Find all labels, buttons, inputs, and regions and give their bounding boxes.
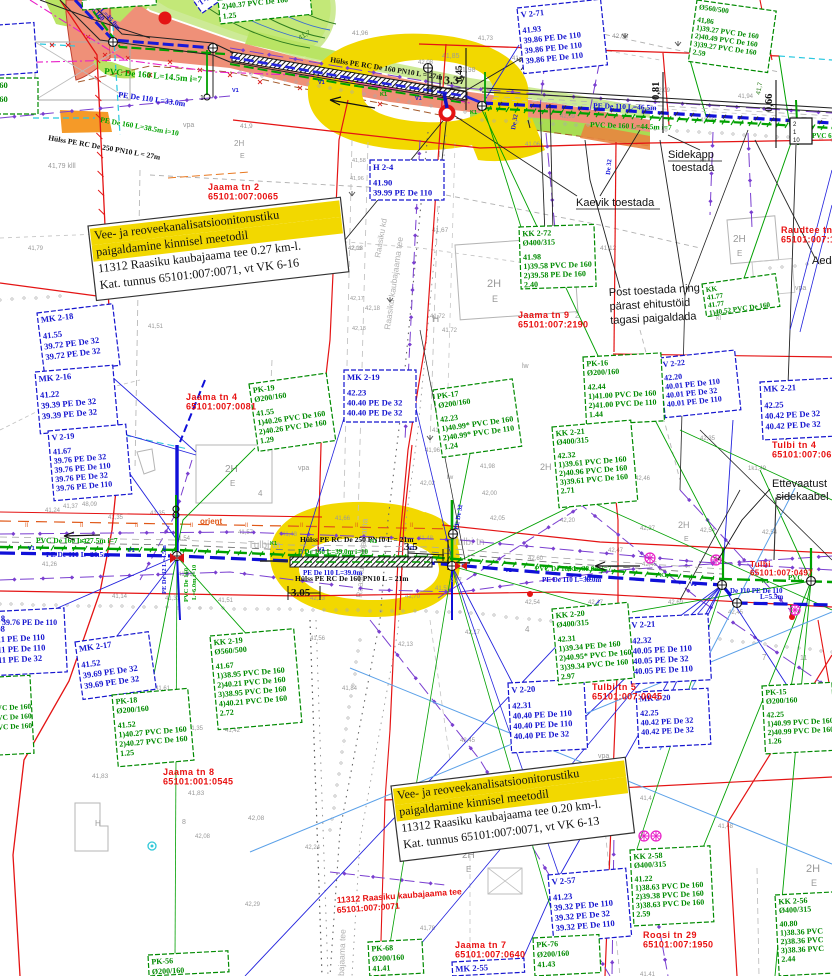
svg-text:PK-56: PK-56 [151,956,173,966]
svg-text:vpa: vpa [298,465,309,472]
svg-text:42,18: 42,18 [365,306,381,312]
svg-text:V1: V1 [690,582,697,588]
svg-text:42,23: 42,23 [310,596,326,602]
svg-text:42,08: 42,08 [248,815,265,822]
svg-text:1.24: 1.24 [443,441,458,452]
svg-text:E: E [684,536,689,543]
svg-text:42,00: 42,00 [482,491,498,497]
svg-text:41,9: 41,9 [240,123,253,130]
svg-text:Ø400/315: Ø400/315 [634,859,667,870]
svg-text:PVC De 160: PVC De 160 [183,568,190,602]
svg-text:E: E [811,878,817,888]
svg-text:2.97: 2.97 [561,671,576,681]
svg-text:Tulbi tn: Tulbi tn [452,537,484,548]
svg-text:E De 160 L=39.0m i=10: E De 160 L=39.0m i=10 [298,548,369,556]
svg-text:3.5: 3.5 [404,541,418,553]
svg-text:41,26: 41,26 [42,562,58,568]
svg-text:41.41: 41.41 [372,963,390,973]
svg-text:4: 4 [258,489,263,498]
svg-text:41,96: 41,96 [350,176,364,182]
svg-text:PE De 110 L=26.5m: PE De 110 L=26.5m [46,550,110,559]
svg-text:Sidekapp: Sidekapp [668,149,714,161]
svg-text:V 2-57: V 2-57 [551,875,576,887]
svg-text:65101:007:0497: 65101:007:0497 [750,569,813,578]
svg-text:42,17: 42,17 [350,296,364,302]
svg-text:K1: K1 [570,567,577,573]
svg-text:lw: lw [447,474,453,481]
svg-text:Il: Il [190,523,193,529]
svg-text:V1: V1 [28,546,35,552]
svg-text:42,54: 42,54 [525,600,541,606]
svg-text:Il: Il [355,523,358,529]
svg-text:65101:001:0545: 65101:001:0545 [163,777,233,787]
svg-text:42.32: 42.32 [632,635,652,646]
svg-text:1.29: 1.29 [259,435,274,446]
svg-text:41,96: 41,96 [352,30,369,37]
svg-text:Jaama tn 4: Jaama tn 4 [186,392,238,402]
svg-text:41,37: 41,37 [63,504,79,510]
svg-text:8: 8 [182,819,186,826]
svg-text:65101:007:0640: 65101:007:0640 [455,950,525,960]
svg-text:PK-68: PK-68 [371,943,393,953]
svg-text:Il: Il [80,523,83,529]
svg-text:2.59: 2.59 [636,909,650,919]
svg-text:2.71: 2.71 [560,485,575,495]
svg-text:42,13: 42,13 [398,642,414,648]
svg-text:39.76 PE De 110: 39.76 PE De 110 [2,618,57,627]
svg-text:41,35: 41,35 [108,515,124,521]
svg-text:41,48: 41,48 [718,824,734,830]
svg-text:2.59: 2.59 [692,47,706,58]
svg-text:H: H [95,819,101,828]
svg-text:Ettevaatust: Ettevaatust [772,478,827,490]
svg-text:Jaama tn 8: Jaama tn 8 [163,767,215,777]
svg-text:42,46: 42,46 [635,476,651,482]
svg-text:41,73: 41,73 [478,36,494,42]
svg-text:41,14: 41,14 [112,594,128,600]
svg-text:Il: Il [300,523,303,529]
svg-text:39.99 PE De 110: 39.99 PE De 110 [373,188,432,198]
svg-text:41,98: 41,98 [480,464,496,470]
svg-text:41,79: 41,79 [28,246,44,252]
svg-text:MK 2-21: MK 2-21 [763,382,796,394]
svg-text:42.25: 42.25 [764,399,784,410]
svg-text:42,24: 42,24 [305,845,321,851]
svg-text:41,83: 41,83 [92,773,109,780]
svg-text:48,09: 48,09 [82,502,98,508]
svg-text:0,81: 0,81 [651,82,662,100]
svg-text:PE De 32 L=4.5m: PE De 32 L=4.5m [161,545,168,594]
svg-text:PE De 110 L=38.0m: PE De 110 L=38.0m [542,576,601,584]
svg-text:H 2-4: H 2-4 [373,162,394,172]
svg-text:41,56: 41,56 [310,636,326,642]
svg-text:Ø200/160: Ø200/160 [587,367,620,378]
svg-text:42,17: 42,17 [465,630,481,636]
svg-text:2H: 2H [225,464,238,475]
svg-text:42,18: 42,18 [348,246,364,252]
svg-text:Raudtee tn: Raudtee tn [781,225,832,235]
svg-text:41,79 klll: 41,79 klll [48,163,76,170]
svg-text:42,18: 42,18 [352,326,366,332]
svg-text:41,48: 41,48 [282,532,298,538]
svg-text:42,09: 42,09 [560,114,576,120]
svg-text:160: 160 [0,94,8,104]
svg-text:V1: V1 [415,96,422,102]
svg-text:65101:007:0065: 65101:007:0065 [208,192,278,202]
svg-text:41,67: 41,67 [432,227,449,234]
svg-text:2.47: 2.47 [450,578,462,584]
svg-text:Ø200/160: Ø200/160 [152,966,185,976]
svg-text:Hülss PE RC De 160 PN10 L = 21: Hülss PE RC De 160 PN10 L = 21m [295,574,409,583]
svg-text:L=6.0m i=10: L=6.0m i=10 [191,565,198,600]
svg-text:Kaevik toestada: Kaevik toestada [576,197,655,209]
svg-text:0,66: 0,66 [764,94,775,112]
svg-text:V1: V1 [505,568,512,574]
svg-text:42,08: 42,08 [195,834,211,840]
svg-text:L=5.5m: L=5.5m [760,593,783,601]
svg-text:K1: K1 [380,92,387,98]
svg-text:De 32: De 32 [605,159,613,175]
svg-text:Jaama tn 2: Jaama tn 2 [208,182,260,192]
svg-text:V1: V1 [318,80,325,86]
svg-text:41,51: 41,51 [218,598,234,604]
svg-text:PVC 6: PVC 6 [812,132,832,140]
svg-text:41,72: 41,72 [430,314,446,320]
svg-text:Il: Il [410,523,413,529]
svg-text:40.40 PE De 32: 40.40 PE De 32 [347,408,402,418]
svg-text:42,37: 42,37 [640,526,656,532]
svg-text:4: 4 [525,625,530,634]
svg-text:41,72: 41,72 [442,328,458,334]
svg-text:42,35: 42,35 [700,436,716,442]
svg-text:42,45: 42,45 [460,738,476,744]
svg-text:40.40 PE De 32: 40.40 PE De 32 [347,398,402,408]
svg-text:bajaama tee: bajaama tee [336,929,348,976]
svg-text:41,58: 41,58 [352,158,366,164]
svg-text:2.72: 2.72 [219,708,234,718]
svg-text:Ø400/315: Ø400/315 [522,237,555,247]
svg-text:toestada: toestada [672,162,715,174]
svg-text:K1: K1 [470,110,477,116]
svg-text:Hülss PE RC De 250 PN10 L = 21: Hülss PE RC De 250 PN10 L = 21m [300,535,414,544]
svg-text:41.90: 41.90 [373,178,392,188]
svg-text:65101:007:0081: 65101:007:0081 [186,402,256,412]
svg-text:160: 160 [0,80,8,90]
svg-text:Roosi tn 29: Roosi tn 29 [643,930,697,940]
svg-text:Tulbi tn 5: Tulbi tn 5 [592,682,636,692]
svg-text:65101:007:060: 65101:007:060 [772,450,832,460]
svg-text:65101:007:0045: 65101:007:0045 [592,692,662,702]
svg-text:1.25: 1.25 [120,748,135,758]
svg-text:2H: 2H [487,278,501,290]
svg-text:V1: V1 [128,548,135,554]
svg-text:PVC De 160 L=27.5m i=7: PVC De 160 L=27.5m i=7 [36,536,118,545]
svg-text:41,96: 41,96 [425,448,441,454]
svg-text:Il: Il [245,523,248,529]
svg-text:42,29: 42,29 [245,902,261,908]
svg-text:41,41: 41,41 [640,972,656,976]
svg-text:Ø200/160: Ø200/160 [537,949,570,960]
svg-text:7: 7 [762,653,767,662]
svg-text:65101:007:1: 65101:007:1 [781,235,832,245]
svg-text:1.26: 1.26 [768,736,782,746]
svg-text:1.25: 1.25 [222,10,237,20]
svg-text:1: 1 [200,95,204,102]
svg-text:Ø400/315: Ø400/315 [779,904,812,915]
svg-text:Ø200/160: Ø200/160 [766,695,798,706]
svg-text:E: E [240,153,245,160]
svg-text:Aed: Aed [812,255,832,267]
svg-text:V 2-21: V 2-21 [631,619,655,630]
svg-text:41,94: 41,94 [738,94,754,100]
svg-text:E: E [737,249,742,258]
svg-text:3.37: 3.37 [444,73,465,87]
svg-text:10: 10 [793,138,800,144]
svg-text:65101:007:1950: 65101:007:1950 [643,940,713,950]
svg-text:K1: K1 [660,573,667,579]
svg-text:Jaama tn 7: Jaama tn 7 [455,940,507,950]
svg-text:vpa: vpa [183,122,194,129]
svg-text:lw: lw [522,363,530,370]
svg-text:MK 2-55: MK 2-55 [455,962,488,974]
svg-text:K1: K1 [80,539,87,545]
svg-text:41,4: 41,4 [640,796,652,802]
svg-text:V1: V1 [232,88,239,94]
svg-text:K1: K1 [370,539,377,545]
svg-text:2H: 2H [806,863,820,875]
svg-text:42.23: 42.23 [347,388,366,398]
svg-text:K1: K1 [270,541,277,547]
svg-text:K1: K1 [762,579,769,585]
svg-text:Ø200/160: Ø200/160 [372,953,405,964]
svg-text:42.25: 42.25 [640,708,659,718]
svg-text:V1: V1 [585,576,592,582]
svg-text:2H: 2H [540,462,552,472]
svg-text:41,83: 41,83 [188,790,205,797]
svg-text:E: E [492,294,498,304]
svg-text:42,47: 42,47 [608,548,624,554]
svg-text:41,57: 41,57 [238,530,254,536]
svg-text:2H: 2H [234,139,244,148]
svg-text:V 2-20: V 2-20 [511,684,535,695]
svg-text:1.44: 1.44 [589,410,603,420]
svg-text:41,84: 41,84 [342,686,358,692]
svg-text:Il: Il [135,523,138,529]
svg-text:41.43: 41.43 [537,959,555,969]
svg-text:41,51: 41,51 [148,324,164,330]
svg-text:sidekaabel: sidekaabel [776,491,829,503]
svg-text:Jaama tn 9: Jaama tn 9 [518,310,570,320]
svg-text:E: E [230,479,235,488]
svg-text:41,66: 41,66 [335,516,351,522]
svg-text:orient: orient [200,517,223,526]
svg-text:2.44: 2.44 [781,954,795,964]
svg-text:V1: V1 [318,547,325,553]
svg-text:42,05: 42,05 [490,516,506,522]
svg-text:Il: Il [25,523,28,529]
svg-text:42.31: 42.31 [512,700,532,711]
svg-text:41.98: 41.98 [523,252,541,262]
svg-text:Tulbi tn 4: Tulbi tn 4 [772,440,816,450]
svg-text:2.40: 2.40 [524,280,538,289]
svg-text:2H: 2H [678,520,690,530]
svg-text:65101:007:2190: 65101:007:2190 [518,320,588,330]
svg-text:PK-76: PK-76 [536,939,558,949]
svg-text:MK 2-19: MK 2-19 [347,372,380,382]
svg-text:2H: 2H [733,234,746,245]
svg-text:E: E [466,865,471,874]
